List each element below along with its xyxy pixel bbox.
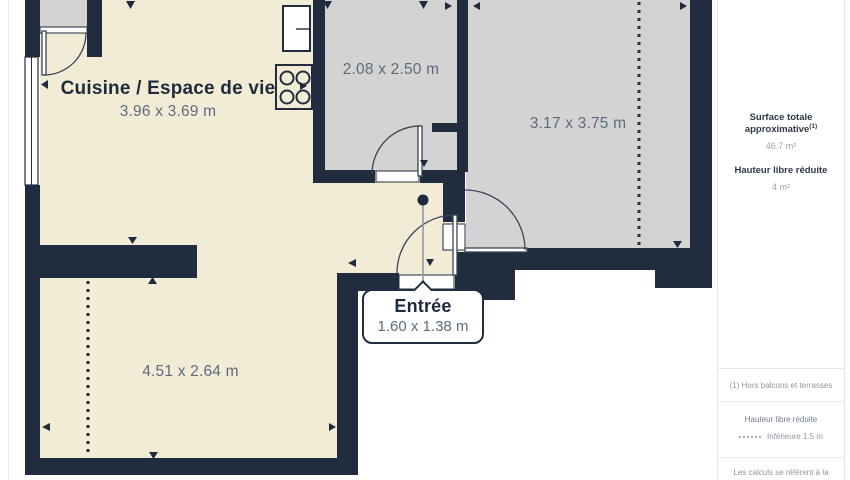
wall-segment (25, 185, 40, 458)
entry-recess-area (40, 0, 87, 30)
wall-segment (690, 0, 712, 250)
legend: Hauteur libre réduite Inférieure 1.5 m (718, 401, 844, 457)
room-name: Cuisine / Espace de vie (58, 78, 278, 100)
surface-total-text: Surface totale approximative (745, 112, 813, 135)
right-room-label: 3.17 x 3.75 m (465, 112, 691, 133)
footnote-ref: (1) (809, 123, 817, 130)
floor-plan: Cuisine / Espace de vie 3.96 x 3.69 m 2.… (0, 0, 717, 480)
surface-total-title: Surface totale approximative(1) (718, 112, 844, 135)
kitchen-label: Cuisine / Espace de vie 3.96 x 3.69 m (58, 78, 278, 121)
legend-title: Hauteur libre réduite (718, 415, 844, 424)
bottom-room-label: 4.51 x 2.64 m (78, 360, 303, 381)
wall-segment (25, 0, 40, 57)
room-dimensions: 3.96 x 3.69 m (58, 103, 278, 121)
dotted-line-icon (739, 436, 761, 438)
room-dimensions: 1.60 x 1.38 m (364, 318, 482, 335)
surface-summary: Surface totale approximative(1) 46.7 m² … (718, 0, 844, 368)
wall-segment (25, 458, 358, 475)
wall-segment (337, 273, 358, 475)
info-panel: Surface totale approximative(1) 46.7 m² … (717, 0, 845, 480)
footnote: (1) Hors balcons et terrasses (718, 368, 844, 401)
surface-total-value: 46.7 m² (718, 141, 844, 151)
wall-segment (515, 248, 655, 270)
room-top-area (325, 0, 457, 172)
room-bottom-area (40, 250, 338, 460)
room-dimensions: 3.17 x 3.75 m (465, 115, 691, 133)
legend-row: Inférieure 1.5 m (718, 432, 844, 441)
top-room-label: 2.08 x 2.50 m (323, 58, 459, 79)
reduced-height-title: Hauteur libre réduite (718, 165, 844, 176)
wall-segment (655, 248, 712, 288)
window (25, 57, 38, 185)
floorplan-page: Cuisine / Espace de vie 3.96 x 3.69 m 2.… (0, 0, 850, 480)
legend-item-label: Inférieure 1.5 m (767, 432, 823, 441)
room-dimensions: 4.51 x 2.64 m (78, 363, 303, 381)
room-dimensions: 2.08 x 2.50 m (323, 61, 459, 79)
disclaimer: Les calculs se réfèrent à la norme RICS … (718, 457, 844, 480)
reduced-height-value: 4 m² (718, 182, 844, 192)
